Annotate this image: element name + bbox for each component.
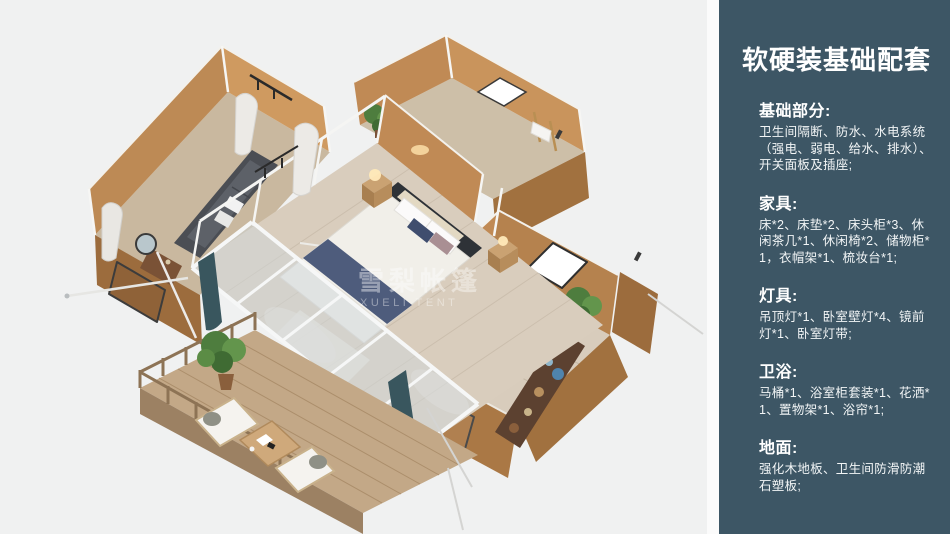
- section-body: 床*2、床垫*2、床头柜*3、休闲茶几*1、休闲椅*2、储物柜*1，衣帽架*1、…: [759, 217, 937, 267]
- section-body: 卫生间隔断、防水、水电系统（强电、弱电、给水、排水）、开关面板及插座;: [759, 124, 937, 174]
- table-lamp: [498, 236, 508, 246]
- section-body: 马桶*1、浴室柜套装*1、花洒*1、置物架*1、浴帘*1;: [759, 385, 937, 418]
- table-lamp: [369, 169, 381, 181]
- section-heading: 地面:: [759, 439, 937, 458]
- round-mirror: [136, 234, 156, 254]
- floorplan-3d-render: 雪梨帐篷 XUELI TENT: [0, 0, 707, 534]
- section-body: 吊顶灯*1、卧室壁灯*4、镜前灯*1、卧室灯带;: [759, 309, 937, 342]
- slide: 雪梨帐篷 XUELI TENT 软硬装基础配套 基础部分: 卫生间隔断、防水、水…: [0, 0, 950, 534]
- section-furniture: 家具: 床*2、床垫*2、床头柜*3、休闲茶几*1、休闲椅*2、储物柜*1，衣帽…: [759, 195, 937, 267]
- section-bathroom: 卫浴: 马桶*1、浴室柜套装*1、花洒*1、置物架*1、浴帘*1;: [759, 363, 937, 418]
- watermark-text: 雪梨帐篷: [358, 266, 482, 296]
- section-heading: 灯具:: [759, 287, 937, 306]
- watermark-subtext: XUELI TENT: [360, 297, 458, 309]
- floorplan-render-area: 雪梨帐篷 XUELI TENT: [0, 0, 707, 534]
- section-lighting: 灯具: 吊顶灯*1、卧室壁灯*4、镜前灯*1、卧室灯带;: [759, 287, 937, 342]
- section-basic: 基础部分: 卫生间隔断、防水、水电系统（强电、弱电、给水、排水）、开关面板及插座…: [759, 102, 937, 174]
- page-title: 软硬装基础配套: [742, 42, 936, 78]
- section-body: 强化木地板、卫生间防滑防潮石塑板;: [759, 461, 937, 494]
- section-heading: 卫浴:: [759, 363, 937, 382]
- spec-list: 基础部分: 卫生间隔断、防水、水电系统（强电、弱电、给水、排水）、开关面板及插座…: [759, 102, 937, 494]
- section-heading: 基础部分:: [759, 102, 937, 121]
- divider-gutter: [707, 0, 719, 534]
- section-heading: 家具:: [759, 195, 937, 214]
- section-floor: 地面: 强化木地板、卫生间防滑防潮石塑板;: [759, 439, 937, 494]
- spec-panel: 软硬装基础配套 基础部分: 卫生间隔断、防水、水电系统（强电、弱电、给水、排水）…: [719, 0, 950, 534]
